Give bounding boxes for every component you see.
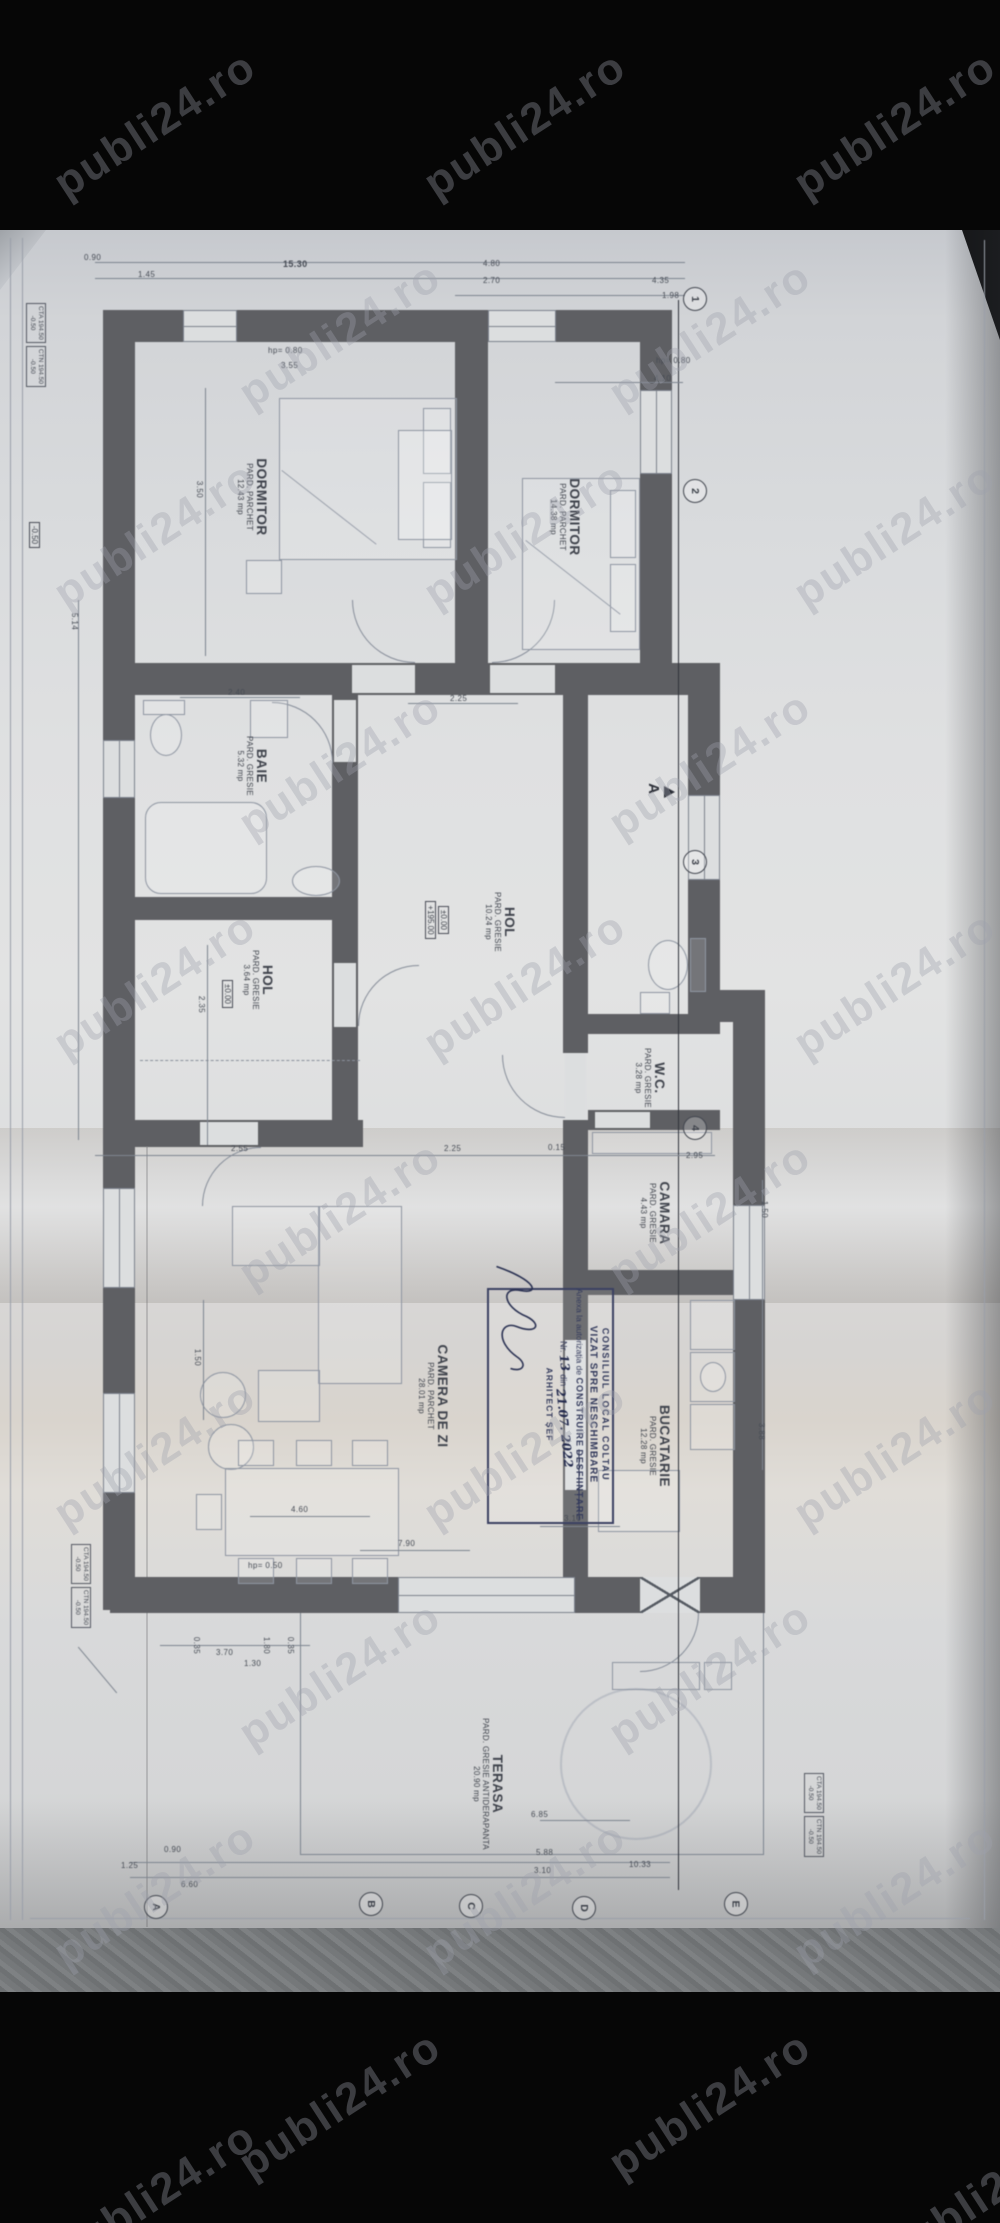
watermark-text: publi24.ro	[45, 451, 265, 618]
watermark-text: publi24.ro	[230, 1131, 450, 1298]
watermark-text: publi24.ro	[600, 1591, 820, 1758]
watermark-text: publi24.ro	[600, 2021, 820, 2188]
watermark-text: publi24.ro	[600, 681, 820, 848]
watermark-text: publi24.ro	[415, 451, 635, 618]
watermark-text: publi24.ro	[785, 451, 1000, 618]
watermark-text: publi24.ro	[875, 2111, 1000, 2223]
watermark-text: publi24.ro	[415, 1371, 635, 1538]
watermark-text: publi24.ro	[45, 2111, 265, 2223]
watermark-text: publi24.ro	[600, 1131, 820, 1298]
watermark-text: publi24.ro	[785, 1811, 1000, 1978]
watermark-layer: publi24.ro publi24.ro publi24.ro publi24…	[0, 0, 1000, 2223]
watermark-text: publi24.ro	[415, 41, 635, 208]
photo-of-floor-plan: { "watermark": {"text": "publi24.ro"}, "…	[0, 0, 1000, 2223]
watermark-text: publi24.ro	[230, 1591, 450, 1758]
watermark-text: publi24.ro	[600, 251, 820, 418]
watermark-text: publi24.ro	[45, 1371, 265, 1538]
watermark-text: publi24.ro	[415, 1811, 635, 1978]
watermark-text: publi24.ro	[230, 251, 450, 418]
watermark-text: publi24.ro	[45, 41, 265, 208]
watermark-text: publi24.ro	[45, 901, 265, 1068]
watermark-text: publi24.ro	[785, 41, 1000, 208]
watermark-text: publi24.ro	[785, 1371, 1000, 1538]
watermark-text: publi24.ro	[785, 901, 1000, 1068]
watermark-text: publi24.ro	[415, 901, 635, 1068]
watermark-text: publi24.ro	[230, 681, 450, 848]
watermark-text: publi24.ro	[230, 2021, 450, 2188]
watermark-text: publi24.ro	[45, 1811, 265, 1978]
